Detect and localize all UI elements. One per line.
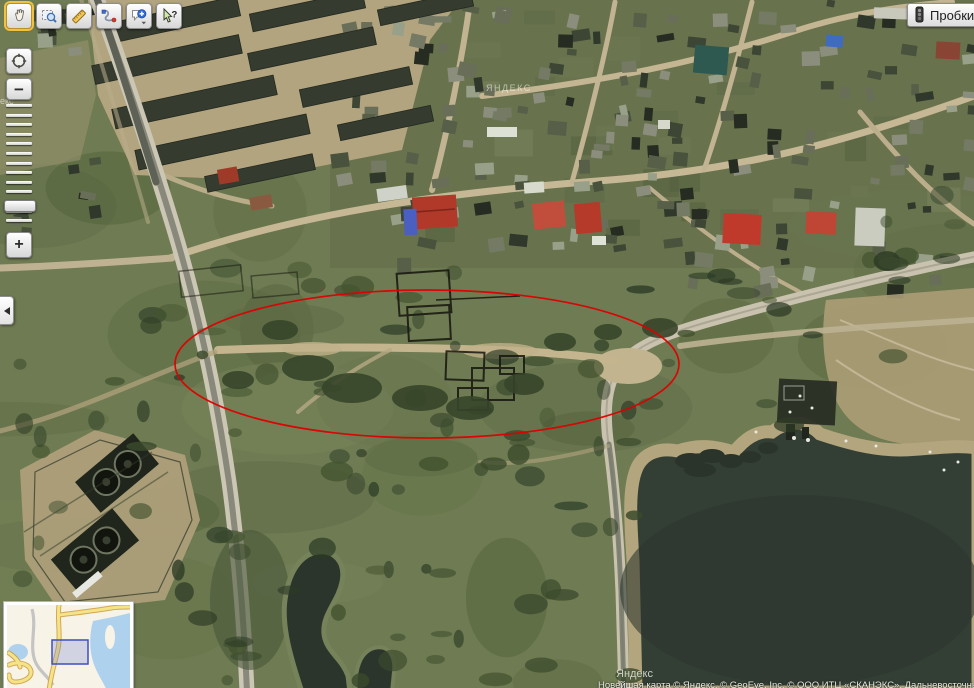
crosshair-circle-icon	[10, 52, 28, 70]
comment-plus-icon	[130, 7, 148, 25]
copyright-text: Новейшая карта © Яндекс, © GeoEye, Inc. …	[598, 680, 974, 688]
svg-text:?: ?	[172, 10, 178, 21]
traffic-button-label: Пробки	[930, 8, 974, 23]
zoom-tick	[6, 181, 32, 184]
route-icon	[100, 7, 118, 25]
zoom-tick	[6, 142, 32, 145]
zoom-slider-handle[interactable]	[4, 200, 36, 212]
ruler-button[interactable]	[66, 3, 92, 29]
zoom-select-icon	[40, 7, 58, 25]
yandex-watermark-bottom: Яндекс	[616, 668, 653, 680]
magnifier-select-button[interactable]	[36, 3, 62, 29]
map-window: ЯНДЕКС Яндекс екс	[0, 0, 974, 688]
toolbar: ?	[6, 3, 182, 29]
zoom-tick	[6, 104, 32, 107]
yandex-watermark-center: ЯНДЕКС	[486, 83, 532, 93]
zoom-tick	[6, 133, 32, 136]
zoom-out-button[interactable]: −	[6, 78, 32, 100]
zoom-tick	[6, 190, 32, 193]
add-placemark-button[interactable]	[126, 3, 152, 29]
locate-button[interactable]	[6, 48, 32, 74]
minimap[interactable]	[4, 602, 133, 688]
zoom-tick	[6, 114, 32, 117]
chevron-left-icon	[4, 307, 10, 315]
pan-tool-button[interactable]	[6, 3, 32, 29]
zoom-tick	[6, 162, 32, 165]
zoom-slider-track[interactable]	[6, 104, 32, 232]
route-button[interactable]	[96, 3, 122, 29]
map-canvas[interactable]: ЯНДЕКС Яндекс екс	[0, 0, 974, 688]
zoom-tick	[6, 123, 32, 126]
zoom-tick	[6, 219, 32, 222]
dropdown-arrow-icon	[142, 22, 147, 25]
whats-here-button[interactable]: ?	[156, 3, 182, 29]
ruler-icon	[70, 7, 88, 25]
zoom-control: − +	[6, 48, 32, 260]
zoom-tick	[6, 152, 32, 155]
help-cursor-icon: ?	[160, 7, 178, 25]
minimap-viewport[interactable]	[52, 640, 88, 664]
zoom-tick	[6, 171, 32, 174]
traffic-button[interactable]: Пробки	[907, 3, 974, 27]
hand-icon	[10, 7, 28, 25]
collapse-panel-tab[interactable]	[0, 296, 14, 325]
traffic-light-icon	[914, 6, 925, 24]
zoom-in-button[interactable]: +	[6, 232, 32, 258]
